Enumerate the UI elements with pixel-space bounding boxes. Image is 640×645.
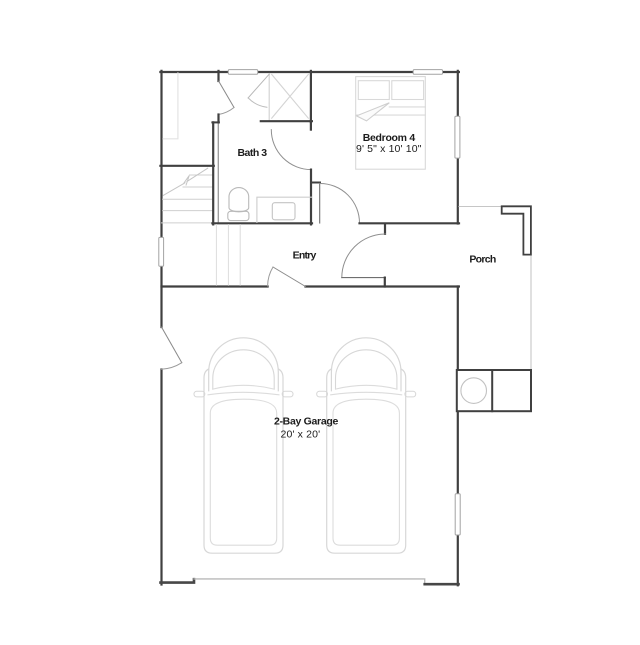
svg-text:Bath 3: Bath 3 (237, 147, 267, 159)
svg-text:Entry: Entry (293, 250, 317, 262)
svg-text:9' 5" x 10' 10": 9' 5" x 10' 10" (356, 143, 422, 155)
svg-text:Porch: Porch (469, 254, 496, 266)
svg-text:2-Bay Garage: 2-Bay Garage (274, 416, 339, 428)
svg-text:20' x 20': 20' x 20' (280, 429, 320, 441)
